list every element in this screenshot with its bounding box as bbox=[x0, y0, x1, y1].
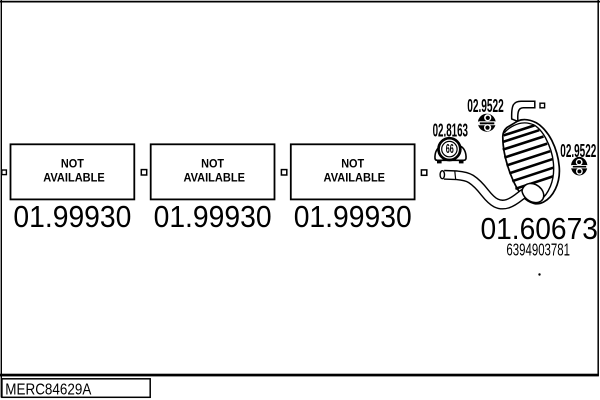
svg-text:66: 66 bbox=[446, 142, 454, 156]
svg-text:01.99930: 01.99930 bbox=[154, 200, 272, 234]
svg-text:AVAILABLE: AVAILABLE bbox=[43, 171, 105, 185]
svg-text:NOT: NOT bbox=[61, 157, 84, 171]
svg-text:MERC84629A: MERC84629A bbox=[5, 381, 91, 398]
svg-text:AVAILABLE: AVAILABLE bbox=[183, 171, 245, 185]
svg-text:NOT: NOT bbox=[201, 157, 224, 171]
svg-text:NOT: NOT bbox=[341, 157, 364, 171]
svg-text:6394903781: 6394903781 bbox=[506, 239, 570, 259]
svg-text:02.9522: 02.9522 bbox=[467, 95, 504, 116]
svg-text:AVAILABLE: AVAILABLE bbox=[324, 171, 386, 185]
svg-text:01.99930: 01.99930 bbox=[294, 200, 412, 234]
svg-text:01.99930: 01.99930 bbox=[13, 200, 131, 234]
